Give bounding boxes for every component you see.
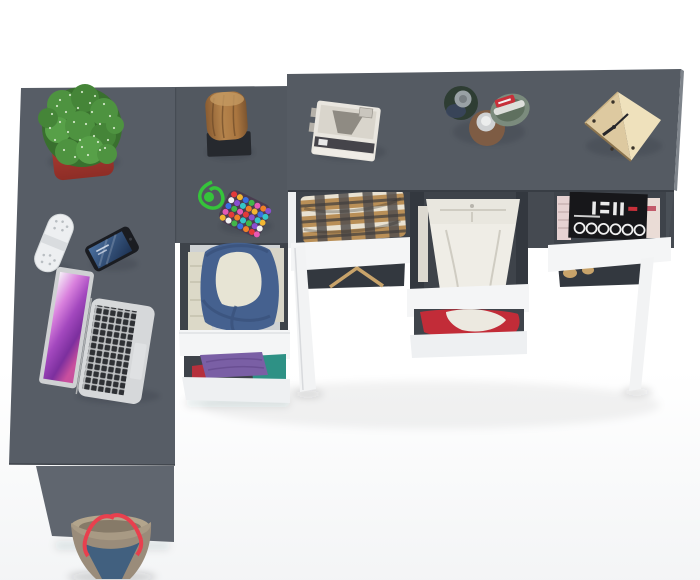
plaid-shirt [300, 189, 407, 243]
desk-edge [9, 464, 175, 465]
product-image-canvas [0, 0, 700, 580]
stump-top [210, 92, 244, 106]
camera-viewfinder [359, 108, 373, 119]
magazine-red-mark [628, 207, 637, 211]
scene-svg [0, 0, 700, 580]
page-accent [646, 206, 656, 211]
shirt-purple [200, 352, 268, 378]
black-magazine [568, 192, 648, 241]
clock-center [612, 125, 616, 129]
cord-knot [204, 192, 214, 202]
trousers-folded-edge [418, 206, 428, 282]
camera-front-detail [318, 139, 328, 146]
white-trousers [430, 224, 516, 290]
drawer-shirts-front [182, 377, 290, 403]
backpack-inner-cloth [216, 252, 262, 307]
trousers-button [470, 204, 474, 208]
tree-stump-group [204, 91, 251, 157]
perfume-cap-inner [459, 95, 467, 103]
amber-cap-top [481, 116, 491, 126]
retro-camera [306, 100, 381, 162]
drawer-red-front [410, 331, 527, 358]
